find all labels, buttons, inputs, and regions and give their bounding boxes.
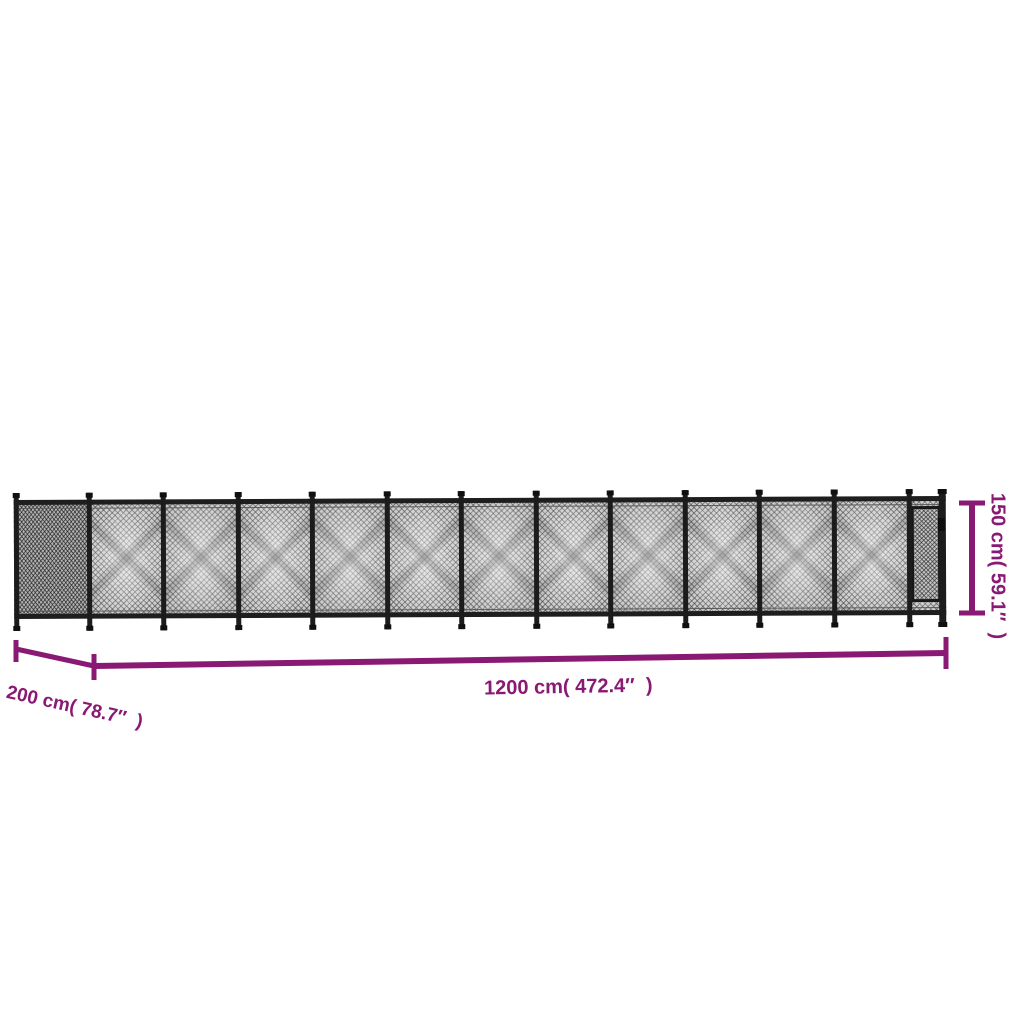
fence-panel — [536, 499, 611, 612]
fence-post — [14, 493, 20, 631]
fence-panel — [834, 498, 909, 611]
fence-post — [608, 490, 614, 628]
fence-post — [161, 492, 167, 630]
fence-post — [832, 489, 838, 627]
fence-panel — [685, 499, 760, 612]
fence-post — [906, 489, 912, 627]
length-dimension-label: 1200 cm( 472.4″ ) — [484, 675, 653, 701]
fence-panel — [89, 501, 164, 614]
fence-post — [683, 490, 689, 628]
fence-panel — [760, 498, 835, 611]
length-dimension-line — [94, 653, 946, 666]
fence-post — [310, 492, 316, 630]
fence-panel — [461, 500, 536, 613]
fence-post — [757, 490, 763, 628]
page-canvas: 1200 cm( 472.4″ ) 200 cm( 78.7″ ) 150 cm… — [0, 0, 1024, 1024]
gate-latch — [938, 518, 945, 531]
fence-post — [86, 493, 92, 631]
fence-panel — [387, 500, 462, 613]
fence-post — [235, 492, 241, 630]
fence-panel — [238, 501, 313, 614]
fence-panel — [312, 500, 387, 613]
depth-dimension-line — [16, 649, 94, 666]
fence-post — [941, 489, 947, 627]
fence-post — [533, 491, 539, 629]
fence-post — [459, 491, 465, 629]
fence-return-panel — [14, 502, 89, 615]
fence-panel — [163, 501, 238, 614]
gate-door — [911, 506, 941, 602]
fence-panel — [611, 499, 686, 612]
fence-post — [384, 491, 390, 629]
depth-dimension-label: 200 cm( 78.7″ ) — [4, 682, 144, 734]
height-dimension-label: 150 cm( 59.1″ ) — [986, 493, 1009, 639]
chain-link-fence — [14, 488, 947, 632]
